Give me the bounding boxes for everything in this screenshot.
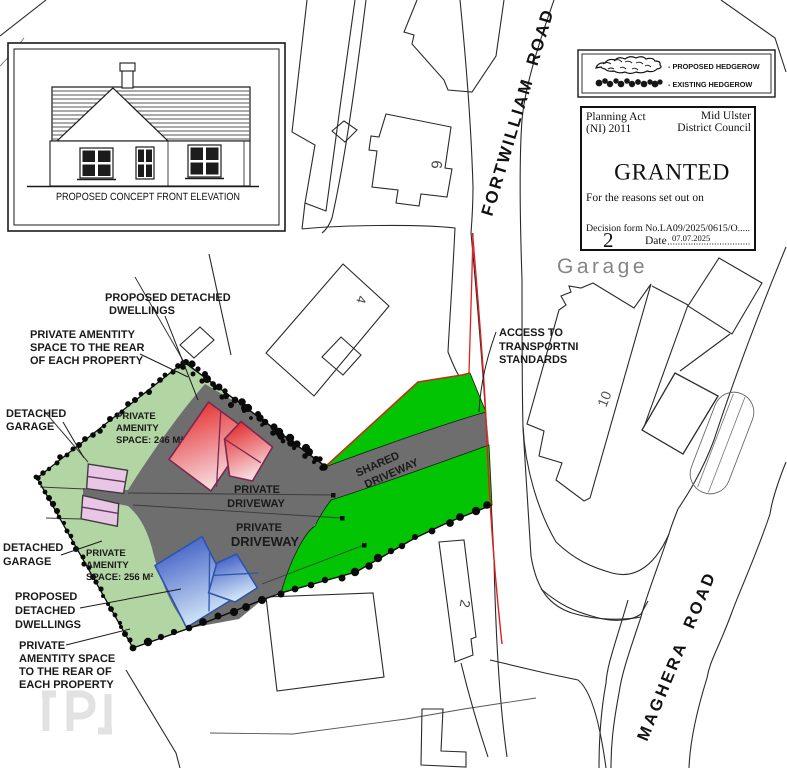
svg-text:PRIVATE AMENTITY: PRIVATE AMENTITY [30, 329, 136, 341]
svg-text:For the reasons set out on: For the reasons set out on [586, 192, 704, 204]
svg-text:PROPOSED CONCEPT FRONT ELEVATI: PROPOSED CONCEPT FRONT ELEVATION [56, 191, 240, 203]
svg-text:DWELLINGS: DWELLINGS [109, 305, 175, 317]
svg-text:Garage: Garage [557, 255, 648, 278]
svg-text:AMENITY: AMENITY [116, 423, 159, 434]
svg-text:SPACE: 256 M²: SPACE: 256 M² [86, 572, 153, 583]
svg-text:STANDARDS: STANDARDS [499, 354, 567, 366]
svg-text:- PROPOSED HEDGEROW: - PROPOSED HEDGEROW [668, 62, 760, 71]
svg-text:TO THE REAR OF: TO THE REAR OF [19, 666, 112, 678]
svg-text:2: 2 [603, 228, 614, 252]
svg-text:PRIVATE: PRIVATE [19, 640, 65, 652]
svg-text:SPACE TO THE REAR: SPACE TO THE REAR [30, 342, 145, 354]
svg-text:PROPOSED: PROPOSED [15, 591, 77, 603]
svg-text:PROPOSED DETACHED: PROPOSED DETACHED [105, 292, 231, 304]
svg-text:PRIVATE: PRIVATE [234, 484, 280, 496]
svg-text:District Council: District Council [677, 122, 751, 134]
svg-text:DETACHED: DETACHED [6, 408, 66, 420]
svg-text:GRANTED: GRANTED [614, 160, 730, 186]
svg-text:SPACE: 246 M²: SPACE: 246 M² [116, 435, 183, 446]
svg-text:DETACHED: DETACHED [3, 542, 63, 554]
svg-text:AMENITY: AMENITY [86, 560, 129, 571]
svg-text:- EXISTING HEDGEROW: - EXISTING HEDGEROW [668, 80, 752, 89]
svg-text:ACCESS TO: ACCESS TO [499, 327, 563, 339]
svg-text:PRIVATE: PRIVATE [116, 411, 156, 422]
svg-text:DETACHED: DETACHED [15, 605, 75, 617]
svg-text:6: 6 [427, 160, 445, 170]
svg-text:GARAGE: GARAGE [3, 556, 51, 568]
svg-text:07.07.2025: 07.07.2025 [672, 233, 710, 243]
svg-text:OF EACH PROPERTY: OF EACH PROPERTY [30, 355, 144, 367]
svg-text:DWELLINGS: DWELLINGS [15, 619, 81, 631]
svg-text:DRIVEWAY: DRIVEWAY [227, 498, 285, 510]
svg-text:AMENTITY SPACE: AMENTITY SPACE [19, 653, 115, 665]
svg-text:Date: Date [645, 235, 667, 247]
svg-text:PRIVATE: PRIVATE [236, 522, 282, 534]
svg-text:TRANSPORTNI: TRANSPORTNI [499, 341, 578, 353]
svg-text:(NI) 2011: (NI) 2011 [586, 123, 631, 135]
svg-text:Planning Act: Planning Act [586, 111, 647, 123]
svg-text:DRIVEWAY: DRIVEWAY [231, 534, 299, 549]
svg-text:EACH PROPERTY: EACH PROPERTY [19, 679, 114, 691]
svg-text:PRIVATE: PRIVATE [86, 548, 126, 559]
svg-text:GARAGE: GARAGE [6, 421, 54, 433]
svg-text:Mid Ulster: Mid Ulster [701, 110, 751, 122]
